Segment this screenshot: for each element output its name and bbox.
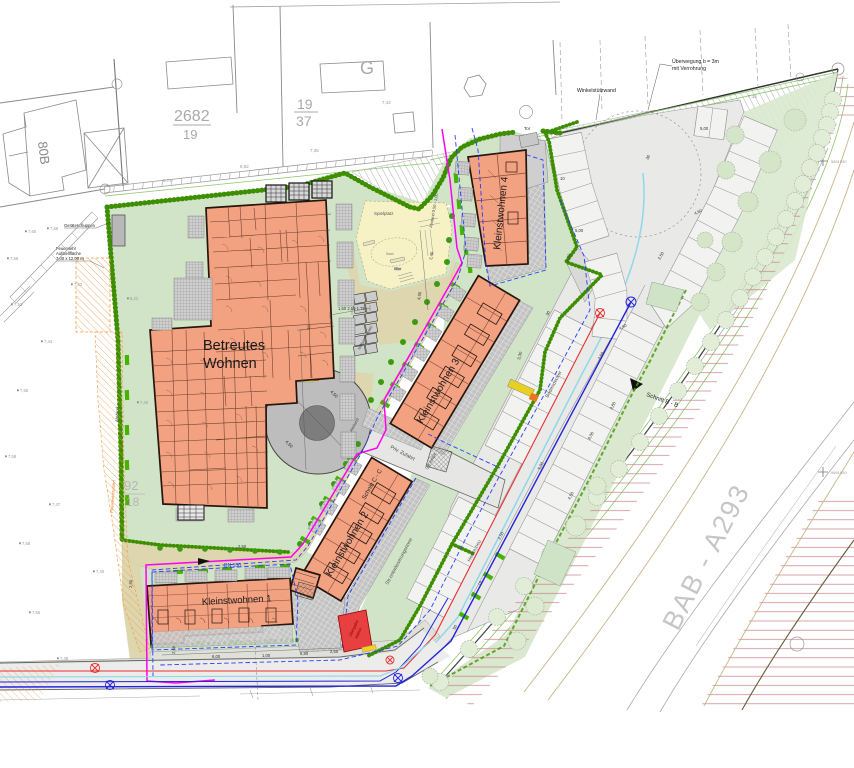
svg-text:5891900: 5891900 xyxy=(831,470,847,475)
svg-text:7,56: 7,56 xyxy=(22,541,31,546)
svg-text:5,00: 5,00 xyxy=(575,228,584,233)
svg-text:Spielplatz: Spielplatz xyxy=(374,211,394,216)
svg-text:2,50: 2,50 xyxy=(330,649,339,654)
svg-text:Betreutes: Betreutes xyxy=(203,338,265,354)
svg-text:5891930: 5891930 xyxy=(831,159,847,164)
svg-text:2,50: 2,50 xyxy=(128,579,133,588)
svg-text:7,60: 7,60 xyxy=(28,229,37,234)
svg-text:Winkelstützwand: Winkelstützwand xyxy=(577,88,616,94)
svg-text:7,40: 7,40 xyxy=(140,400,149,405)
svg-text:Tor: Tor xyxy=(524,126,531,131)
svg-text:6,90: 6,90 xyxy=(300,651,309,656)
svg-text:G: G xyxy=(360,58,374,78)
svg-text:7,68: 7,68 xyxy=(50,226,59,231)
svg-text:7,58: 7,58 xyxy=(8,454,17,459)
svg-text:80B: 80B xyxy=(35,141,53,166)
svg-text:19: 19 xyxy=(297,96,313,112)
svg-text:1,00: 1,00 xyxy=(262,653,271,658)
svg-text:5,00: 5,00 xyxy=(700,126,709,131)
svg-text:7,44: 7,44 xyxy=(44,339,53,344)
svg-text:18: 18 xyxy=(126,495,140,509)
svg-text:6,00: 6,00 xyxy=(212,654,221,659)
svg-text:mit Verrohrung: mit Verrohrung xyxy=(672,66,706,72)
svg-text:7,55: 7,55 xyxy=(10,256,19,261)
svg-text:7,34: 7,34 xyxy=(748,94,757,99)
svg-text:Sand: Sand xyxy=(386,252,394,256)
svg-text:8,22: 8,22 xyxy=(130,296,139,301)
svg-text:2,50: 2,50 xyxy=(238,544,247,549)
svg-text:7,35: 7,35 xyxy=(310,148,319,153)
svg-text:2,50: 2,50 xyxy=(171,645,176,654)
svg-text:Wohnen: Wohnen xyxy=(203,356,257,372)
svg-text:7,68: 7,68 xyxy=(20,388,29,393)
svg-text:Abstand: Abstand xyxy=(114,407,120,422)
svg-text:7,62: 7,62 xyxy=(74,282,83,287)
svg-text:7,40: 7,40 xyxy=(96,569,105,574)
svg-text:Sitze: Sitze xyxy=(394,267,401,271)
svg-text:19: 19 xyxy=(183,127,197,142)
svg-text:92: 92 xyxy=(124,478,138,493)
svg-text:10: 10 xyxy=(560,176,565,181)
svg-text:DN 150: DN 150 xyxy=(224,563,241,569)
svg-text:37: 37 xyxy=(296,113,312,129)
svg-text:8,82: 8,82 xyxy=(240,164,249,169)
svg-text:7,55: 7,55 xyxy=(32,610,41,615)
svg-text:Überwegung b = 3m: Überwegung b = 3m xyxy=(672,58,719,65)
svg-text:7,42: 7,42 xyxy=(382,100,391,105)
svg-text:7,48: 7,48 xyxy=(60,656,69,661)
svg-text:2682: 2682 xyxy=(174,108,210,125)
svg-text:8,72: 8,72 xyxy=(163,178,172,183)
svg-text:1,50 2,50 1,75: 1,50 2,50 1,75 xyxy=(338,306,365,311)
svg-text:7,47: 7,47 xyxy=(52,502,61,507)
